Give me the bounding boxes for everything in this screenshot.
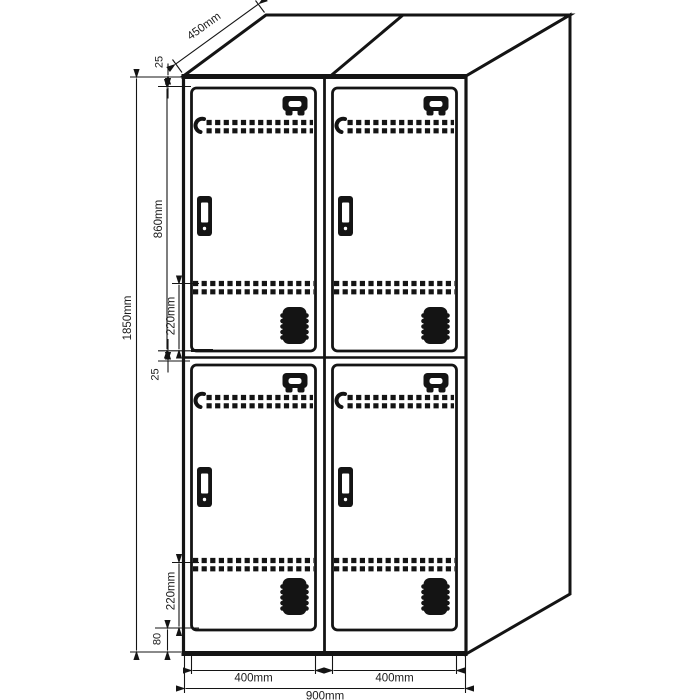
- ext-line: [256, 1, 265, 13]
- door-lower-right: [333, 365, 457, 630]
- dim-door-width-left: 400mm: [193, 671, 315, 685]
- door-upper-left: [192, 88, 316, 351]
- dim-label-base-height: 80: [152, 633, 164, 645]
- dim-label-vent-lower: 220mm: [166, 572, 178, 610]
- dim-mid-frame: 25: [150, 339, 169, 381]
- dim-label-total-width: 900mm: [306, 691, 344, 700]
- vent-grille-icon: [280, 307, 309, 344]
- dim-label-depth: 450mm: [185, 10, 223, 42]
- handle-icon: [338, 196, 353, 236]
- dim-label-top-frame: 25: [154, 56, 166, 68]
- vent-grille-icon: [280, 578, 309, 615]
- vent-grille-icon: [421, 307, 450, 344]
- dim-label-mid-frame: 25: [150, 368, 162, 380]
- handle-icon: [338, 467, 353, 507]
- dim-label-door-width-left: 400mm: [234, 673, 272, 685]
- dim-total-height: 1850mm: [122, 79, 137, 651]
- dim-door-width-right: 400mm: [334, 671, 456, 685]
- door-lower-left: [192, 365, 316, 630]
- side-panel: [466, 15, 570, 654]
- handle-icon: [197, 196, 212, 236]
- door-upper-right: [333, 88, 457, 351]
- dim-base-height: 80: [152, 630, 168, 651]
- dim-label-total-height: 1850mm: [122, 296, 134, 341]
- dim-label-door-width-right: 400mm: [375, 673, 413, 685]
- dim-total-width: 900mm: [186, 689, 465, 700]
- dim-vent-lower: 220mm: [166, 564, 180, 627]
- vent-grille-icon: [421, 578, 450, 615]
- dim-label-door-height: 860mm: [153, 200, 165, 238]
- ext-line: [173, 60, 183, 73]
- handle-icon: [197, 467, 212, 507]
- locker-technical-drawing: 450mm 1850mm 25 860mm 220mm 25: [0, 0, 700, 700]
- dim-label-vent-upper: 220mm: [166, 297, 178, 335]
